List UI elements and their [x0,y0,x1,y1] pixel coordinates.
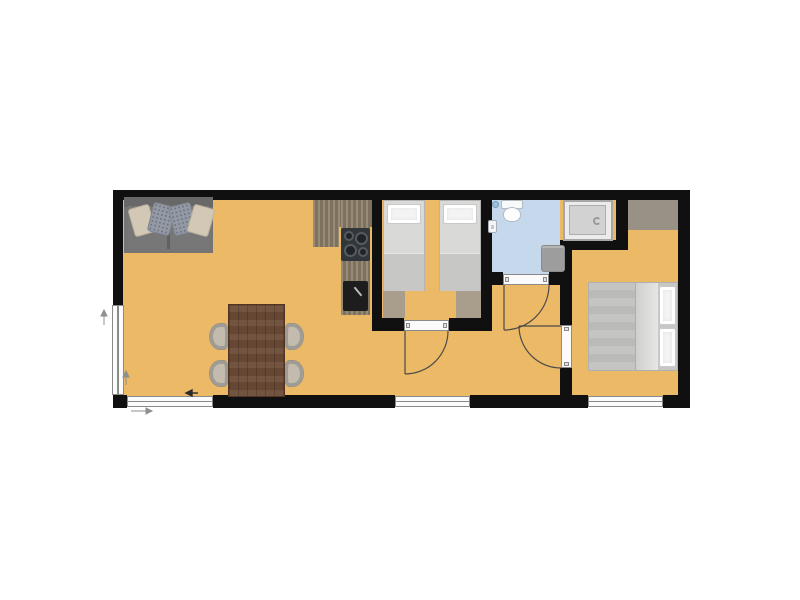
door-arc-twin-bedroom [405,331,448,374]
entry-marker-arrow [186,390,192,396]
door-arc-double-bedroom [519,326,561,368]
floor-plan-canvas [0,0,800,600]
dimension-arrow-up [123,371,129,377]
door-arc-bathroom [504,285,549,330]
door-swing-overlay [0,0,800,600]
dimension-arrow-up [101,310,107,316]
dimension-arrow-right [146,408,152,414]
